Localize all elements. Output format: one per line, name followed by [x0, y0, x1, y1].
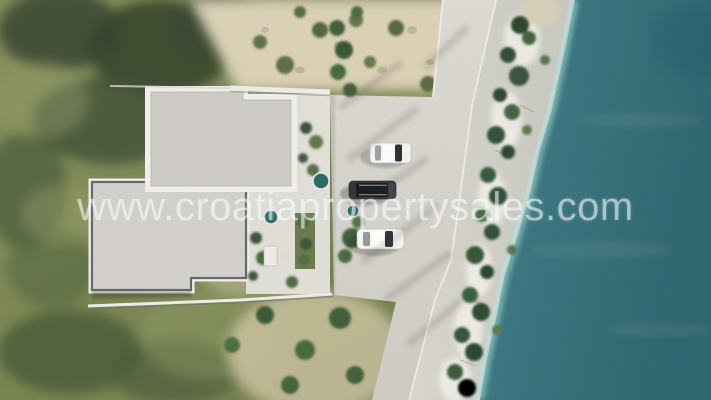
aerial-render: www.croatiapropertysales.com: [0, 0, 711, 400]
lower-villa-roof: [92, 182, 246, 299]
round-umbrella-2: [264, 210, 278, 224]
terrace-table: [281, 251, 289, 263]
round-umbrella-1: [313, 173, 329, 189]
upper-villa-roof: [145, 86, 297, 192]
driveway-edge-shadow: [330, 95, 335, 295]
terrace-furniture: [264, 246, 277, 266]
windshield: [395, 145, 402, 162]
scene-canvas: [0, 0, 711, 400]
